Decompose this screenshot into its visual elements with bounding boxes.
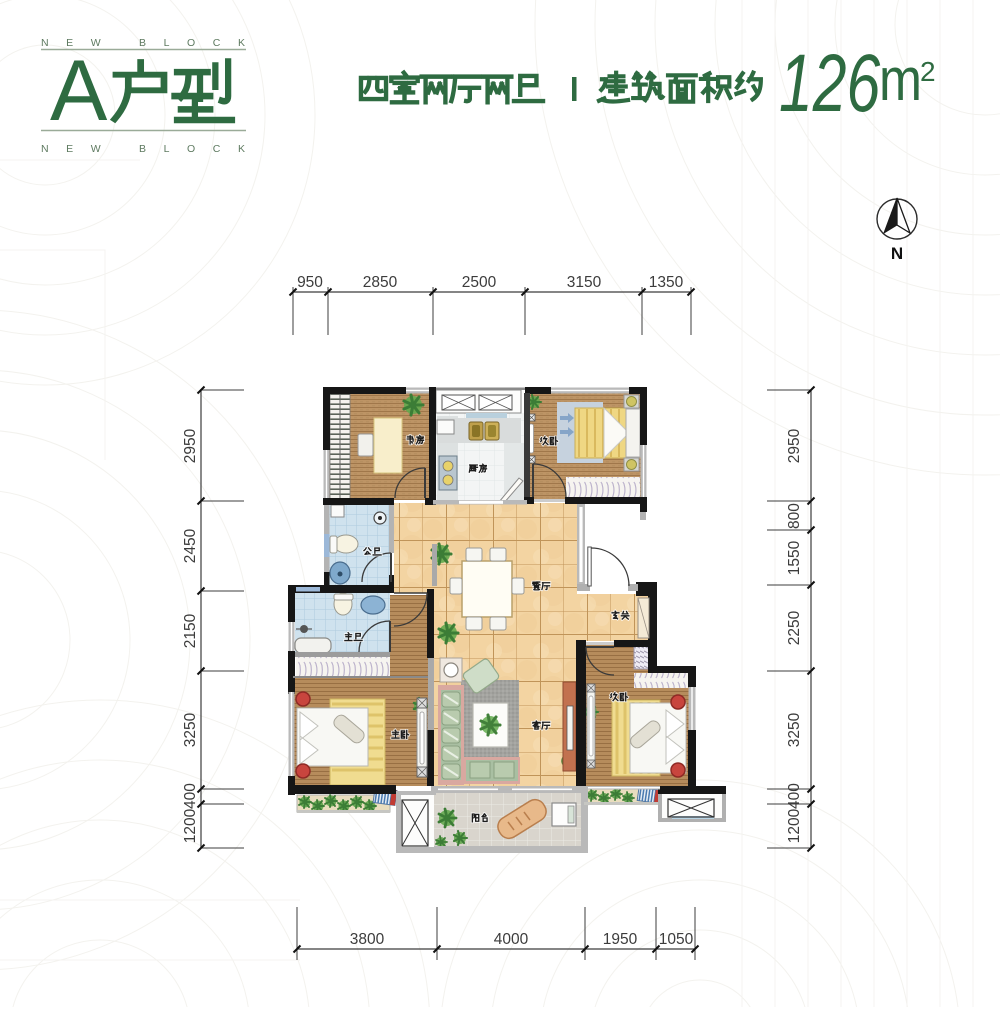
svg-text:1550: 1550 bbox=[786, 540, 803, 575]
svg-text:NEW: NEW bbox=[41, 143, 118, 155]
svg-text:2950: 2950 bbox=[182, 428, 199, 463]
svg-text:3800: 3800 bbox=[350, 931, 385, 948]
svg-text:3150: 3150 bbox=[567, 274, 602, 291]
svg-text:1950: 1950 bbox=[603, 931, 638, 948]
svg-text:400: 400 bbox=[182, 783, 199, 809]
svg-text:400: 400 bbox=[786, 783, 803, 809]
svg-text:3250: 3250 bbox=[786, 712, 803, 747]
svg-text:2500: 2500 bbox=[462, 274, 497, 291]
svg-text:m: m bbox=[879, 45, 922, 113]
svg-text:BLOCK: BLOCK bbox=[139, 37, 263, 49]
svg-text:1200: 1200 bbox=[182, 808, 199, 843]
svg-text:BLOCK: BLOCK bbox=[139, 143, 263, 155]
svg-text:N: N bbox=[891, 244, 903, 263]
svg-text:A: A bbox=[50, 43, 108, 139]
svg-text:2250: 2250 bbox=[786, 610, 803, 645]
svg-text:2850: 2850 bbox=[363, 274, 398, 291]
svg-text:2: 2 bbox=[920, 56, 936, 87]
svg-text:800: 800 bbox=[786, 503, 803, 529]
svg-text:1350: 1350 bbox=[649, 274, 684, 291]
svg-text:2150: 2150 bbox=[182, 613, 199, 648]
svg-text:1200: 1200 bbox=[786, 808, 803, 843]
svg-text:2450: 2450 bbox=[182, 528, 199, 563]
svg-text:1050: 1050 bbox=[659, 931, 694, 948]
svg-text:2950: 2950 bbox=[786, 428, 803, 463]
svg-text:950: 950 bbox=[297, 274, 323, 291]
svg-text:126: 126 bbox=[779, 38, 881, 129]
svg-text:3250: 3250 bbox=[182, 712, 199, 747]
svg-text:4000: 4000 bbox=[494, 931, 529, 948]
